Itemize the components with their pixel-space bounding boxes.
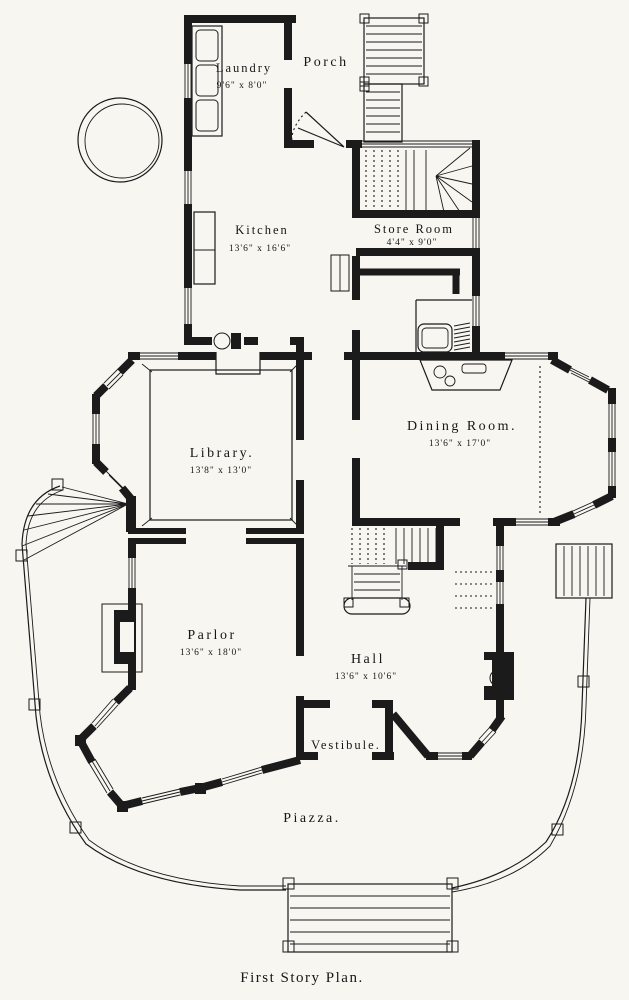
store-room-shelves (331, 255, 349, 291)
main-staircase (344, 528, 495, 614)
porch-stairs (360, 14, 428, 142)
room-label-parlor: Parlor (187, 628, 236, 643)
room-dims-parlor: 13'6" x 18'0" (180, 648, 242, 658)
room-label-piazza: Piazza. (283, 811, 341, 826)
floor-plan-page: Laundry 9'6" x 8'0" Porch Kitchen 13'6" … (0, 0, 629, 1000)
room-label-kitchen: Kitchen (235, 223, 289, 237)
room-dims-store-room: 4'4" x 9'0" (387, 238, 438, 248)
piazza-rail-east (452, 598, 590, 892)
room-label-library: Library. (190, 446, 255, 461)
side-steps (556, 544, 612, 598)
plan-caption: First Story Plan. (240, 970, 363, 986)
room-dims-laundry: 9'6" x 8'0" (217, 81, 268, 91)
room-label-porch: Porch (303, 55, 348, 70)
back-stairs-winders (366, 148, 472, 212)
corner-fan-steps (22, 487, 128, 560)
room-label-laundry: Laundry (216, 61, 272, 75)
room-label-store-room: Store Room (374, 222, 454, 236)
library-trim (142, 364, 298, 526)
room-dims-hall: 13'6" x 10'6" (335, 672, 397, 682)
floor-plan-svg: Laundry 9'6" x 8'0" Porch Kitchen 13'6" … (0, 0, 629, 1000)
front-steps (283, 878, 458, 952)
dining-buffet (420, 360, 512, 390)
room-dims-dining-room: 13'6" x 17'0" (429, 439, 491, 449)
cistern-circle (78, 98, 162, 182)
room-dims-library: 13'8" x 13'0" (190, 466, 252, 476)
room-label-vestibule: Vestibule. (311, 738, 381, 752)
room-label-hall: Hall (351, 652, 385, 667)
kitchen-counter (194, 212, 215, 284)
hall-fireplace (484, 652, 514, 700)
room-label-dining-room: Dining Room. (407, 419, 517, 434)
room-dims-kitchen: 13'6" x 16'6" (229, 244, 291, 254)
parlor-fireplace (102, 604, 142, 672)
